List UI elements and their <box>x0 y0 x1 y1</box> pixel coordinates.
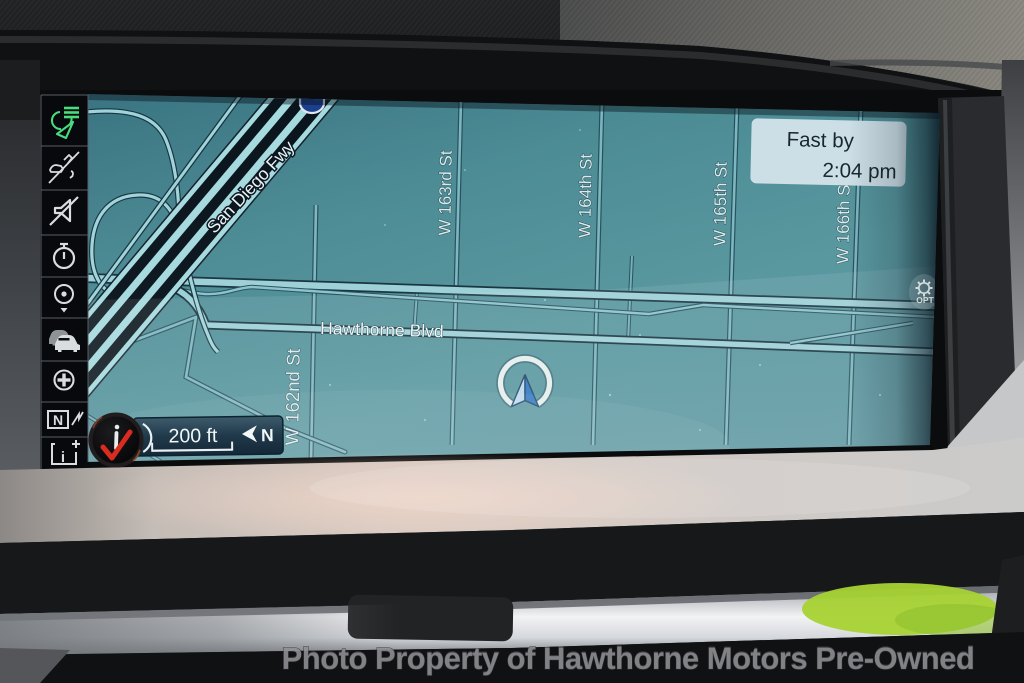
svg-text:Photo Property of Hawthorne Mo: Photo Property of Hawthorne Motors Pre-O… <box>282 641 975 676</box>
svg-text:N: N <box>261 425 274 445</box>
svg-text:i: i <box>61 449 65 466</box>
svg-text:OPT: OPT <box>916 295 934 305</box>
svg-text:N: N <box>53 412 63 428</box>
svg-text:200 ft: 200 ft <box>168 425 218 448</box>
